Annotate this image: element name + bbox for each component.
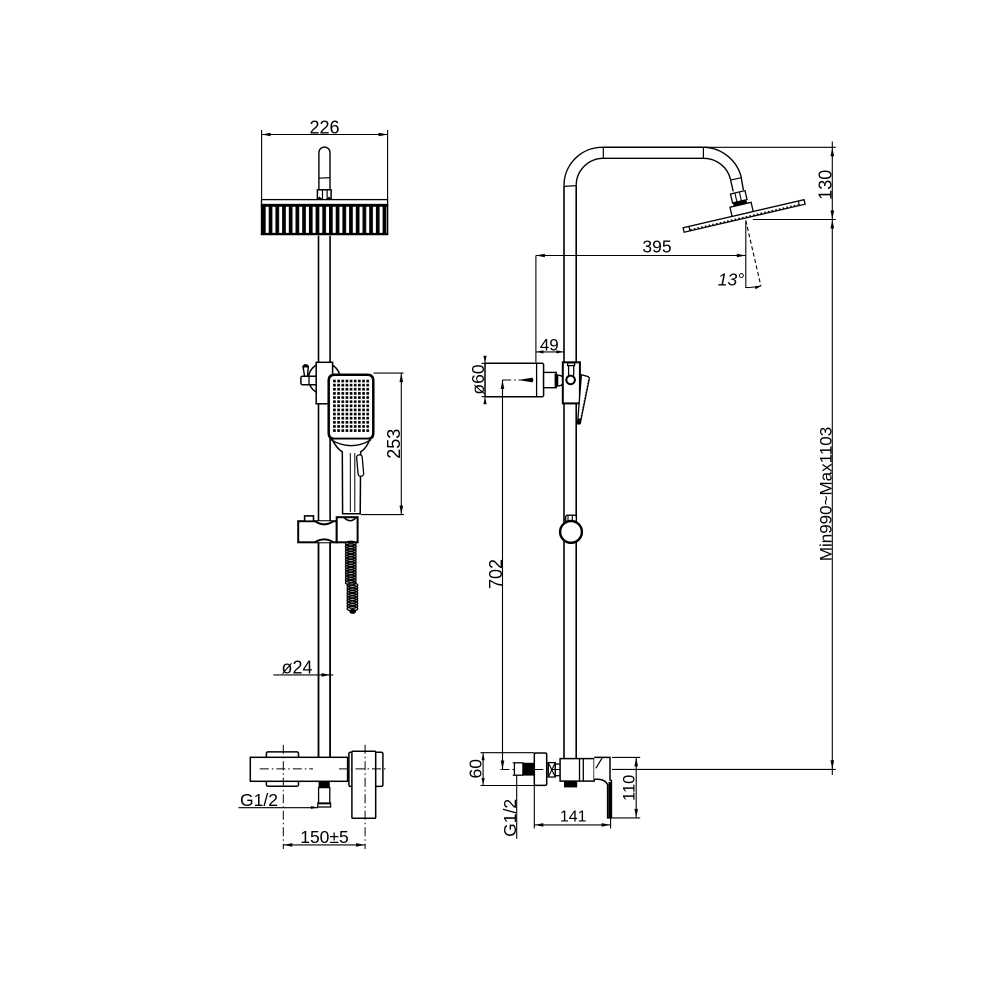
svg-text:ø24: ø24 (281, 657, 312, 677)
svg-text:226: 226 (309, 118, 339, 138)
svg-text:ø60: ø60 (468, 364, 488, 394)
svg-text:130: 130 (815, 170, 835, 200)
svg-text:110: 110 (621, 775, 639, 801)
svg-text:G1/2: G1/2 (240, 790, 278, 810)
svg-text:Min990~Max1103: Min990~Max1103 (816, 427, 835, 561)
svg-text:49: 49 (540, 335, 559, 354)
svg-text:141: 141 (560, 809, 587, 826)
svg-text:253: 253 (384, 429, 404, 459)
svg-text:13°: 13° (718, 269, 744, 289)
svg-text:395: 395 (642, 236, 671, 256)
svg-text:150±5: 150±5 (300, 827, 349, 847)
svg-text:60: 60 (465, 759, 485, 779)
svg-text:702: 702 (486, 559, 506, 589)
svg-text:G1/2: G1/2 (500, 799, 520, 837)
